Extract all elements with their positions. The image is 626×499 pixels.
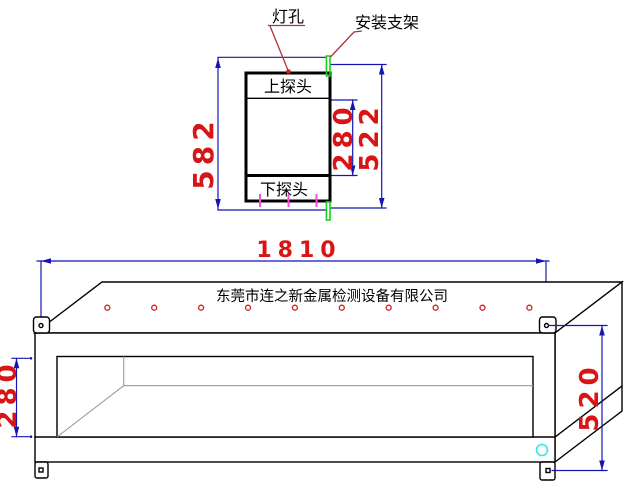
leader-line [331,31,363,57]
extension-dot [30,435,33,438]
bracket-hole [545,324,549,328]
dimension-280-tunnel: 280 [0,357,32,438]
foot-hole [39,468,43,472]
lamp-hole-circle [105,305,110,310]
dimension-text-1810: 1810 [256,238,341,263]
lamp-hole-circle [339,305,344,310]
perspective-view: 1810 东莞市连之新金属检测设备有限公司 [0,238,622,480]
mounting-bracket-left [34,317,50,333]
lamp-hole-circle [246,305,251,310]
foot-hole [546,469,550,473]
mounting-bracket-label: 安装支架 [355,13,419,32]
lamp-hole-circle [292,305,297,310]
lamp-hole-label: 灯孔 [272,7,304,26]
lamp-hole-circle [527,305,532,310]
section-view: 582 522 280 上探头 下探头 [187,7,419,220]
upper-probe-label: 上探头 [264,77,312,96]
lower-probe-label: 下探头 [260,180,308,199]
arrow-up-icon [215,58,221,68]
lamp-hole-circle [386,305,391,310]
lamp-hole-circle [433,305,438,310]
lamp-hole-circle [480,305,485,310]
dimension-text-582: 582 [187,116,220,189]
tunnel-opening [57,357,533,438]
mounting-bracket-mark-bottom [326,202,330,220]
bracket-hole [39,324,43,328]
drawing-canvas: 582 522 280 上探头 下探头 [0,0,626,499]
lamp-hole-callout: 灯孔 [268,7,305,74]
leader-line [270,26,289,72]
mounting-bracket-callout: 安装支架 [331,13,420,57]
dimension-text-280: 280 [0,359,23,428]
arrow-down-icon [215,199,221,209]
lamp-hole-circle [152,305,157,310]
leader-dot [286,69,291,74]
arrow-left-icon [41,258,51,264]
metal-detector-engineering-drawing: 582 522 280 上探头 下探头 [0,0,626,499]
arrow-down-icon [599,461,605,471]
extension-dot [30,357,33,360]
arrow-up-icon [379,65,385,75]
lamp-hole-circle [199,305,204,310]
company-name: 东莞市连之新金属检测设备有限公司 [216,288,448,305]
foot-left [35,462,48,478]
arrow-right-icon [536,258,546,264]
arrow-down-icon [379,198,385,208]
dimension-280-probe-spacing: 280 [329,100,359,176]
dimension-text-280: 280 [329,102,359,171]
dimension-text-520: 520 [575,362,605,431]
dimension-text-522: 522 [355,102,385,171]
